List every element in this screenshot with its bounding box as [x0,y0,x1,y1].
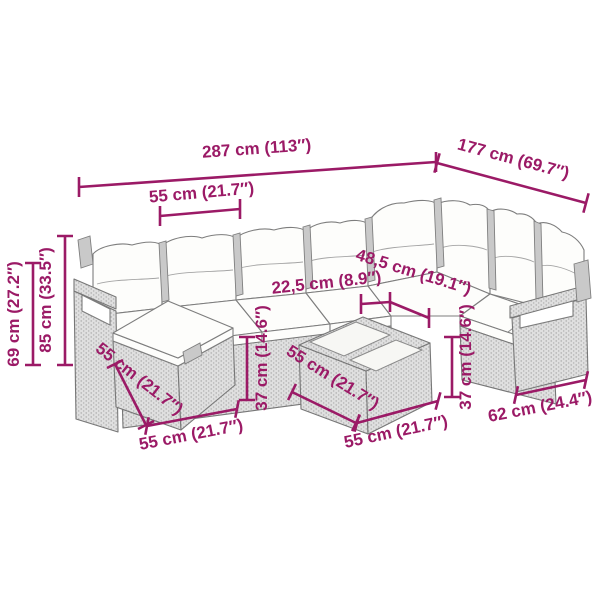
dim-line [57,236,73,365]
dimension-diagram-page: 287 cm (113″) 177 cm (69.7″) 55 cm (21.7… [0,0,600,600]
dim-total-height: 85 cm (33.5″) [36,236,73,365]
back-cushion [162,235,236,308]
dim-total-width: 287 cm (113″) [79,135,436,197]
armrest-post [574,260,591,302]
frame-post [487,209,496,290]
dim-label: 287 cm (113″) [201,135,311,162]
dim-label: 37 cm (14.6″) [252,305,271,410]
dim-line [79,152,436,197]
furniture-dimension-diagram: 287 cm (113″) 177 cm (69.7″) 55 cm (21.7… [0,0,600,600]
dim-label: 37 cm (14.6″) [456,304,475,409]
dim-label: 177 cm (69.7″) [455,135,571,183]
dim-label: 85 cm (33.5″) [36,247,55,352]
armrest-post [78,236,93,268]
dim-seat-height-right: 37 cm (14.6″) [444,304,475,409]
dim-label: 69 cm (27.2″) [4,261,23,366]
dim-seat-module-width: 55 cm (21.7″) [148,178,255,226]
frame-post [534,221,543,302]
